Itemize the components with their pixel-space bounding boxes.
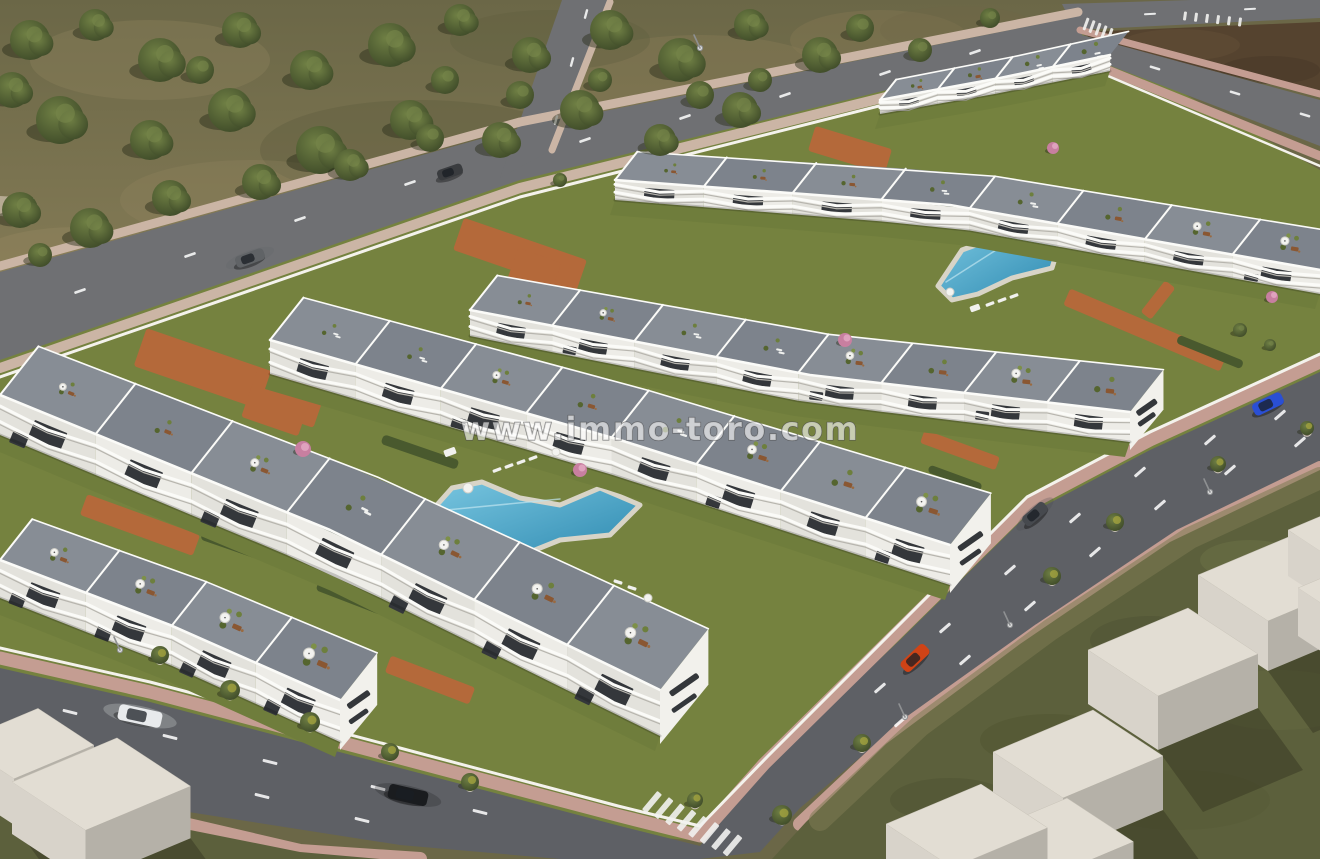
umbrella-pole (254, 462, 256, 464)
roof-shrub (1082, 49, 1087, 54)
tree-highlight (1269, 341, 1274, 346)
roof-shrub (1030, 192, 1034, 196)
roof-shrub (762, 169, 765, 172)
tree-highlight (167, 186, 181, 200)
tree-highlight (17, 198, 31, 212)
roof-shrub (591, 394, 596, 399)
sidewalk-tree (1113, 516, 1121, 524)
roof-shrub (610, 309, 614, 313)
umbrella-pole (62, 386, 64, 388)
tree-highlight (576, 96, 592, 112)
roof-chair (852, 486, 855, 489)
tree-highlight (497, 128, 511, 142)
roof-shrub (528, 294, 531, 297)
roof-shrub (978, 67, 981, 70)
roof-shrub (664, 169, 668, 173)
roof-shrub (419, 347, 423, 351)
roof-chair (922, 88, 923, 89)
garden-parasol (644, 594, 652, 602)
sidewalk-tree (388, 746, 396, 754)
sidewalk-tree (693, 794, 700, 801)
roof-chair (459, 556, 462, 559)
tree-highlight (237, 18, 251, 32)
roof-shrub (548, 583, 554, 589)
roof-shrub (505, 371, 509, 375)
tree-highlight (9, 78, 23, 92)
tree-highlight (156, 45, 174, 63)
roof-shrub (1206, 221, 1211, 226)
roof-shrub (776, 338, 780, 342)
tree-highlight (598, 72, 608, 82)
roof-shrub (264, 458, 269, 463)
roof-shrub (333, 324, 337, 328)
roof-shrub (1094, 42, 1098, 46)
roof-chair (1121, 220, 1123, 222)
roof-chair (1210, 235, 1212, 237)
tree-highlight (657, 129, 670, 142)
umbrella-pole (1015, 373, 1017, 375)
sidewalk-tree (860, 737, 868, 745)
roof-table (855, 361, 862, 366)
roof-shrub (968, 73, 972, 77)
roof-chair (74, 395, 76, 397)
roof-shrub (841, 181, 845, 185)
roof-shrub (847, 470, 852, 475)
pink-flowering-tree (844, 335, 851, 342)
tree-highlight (56, 104, 75, 123)
tree-highlight (747, 14, 760, 27)
roof-shrub (322, 331, 326, 335)
tree-highlight (857, 18, 868, 29)
tree-highlight (386, 30, 404, 48)
roof-shrub (578, 402, 583, 407)
roof-shrub (753, 175, 757, 179)
umbrella-pole (751, 449, 753, 451)
roof-shrub (1036, 55, 1040, 59)
roof-chair (508, 384, 510, 386)
tree-highlight (26, 26, 42, 42)
roof-chair (862, 365, 864, 367)
roof-chair (268, 472, 270, 474)
roof-shrub (518, 300, 522, 304)
tree-highlight (918, 42, 928, 52)
tree-highlight (146, 126, 162, 142)
roof-chair (67, 561, 69, 563)
roof-chair (980, 78, 982, 80)
roof-table (849, 183, 855, 186)
tree-highlight (316, 134, 335, 153)
roof-shrub (941, 180, 945, 184)
garden-parasol (946, 288, 954, 296)
pink-flowering-tree (301, 443, 309, 451)
sidewalk-tree (228, 684, 237, 693)
roof-shrub (642, 626, 648, 632)
sidewalk-tree (468, 776, 476, 784)
roof-chair (765, 179, 767, 181)
umbrella-pole (224, 617, 226, 619)
tree-highlight (257, 170, 271, 184)
tree-highlight (197, 60, 208, 71)
roof-table (1022, 379, 1030, 384)
tree-highlight (92, 14, 105, 27)
tree-highlight (406, 106, 422, 122)
roof-shrub (932, 496, 938, 502)
roof-table (760, 177, 766, 180)
sidewalk-tree (308, 716, 317, 725)
roof-chair (855, 186, 857, 188)
garden-parasol (463, 483, 473, 493)
umbrella-pole (849, 355, 851, 357)
umbrella-pole (496, 374, 498, 376)
umbrella-pole (536, 588, 538, 590)
tree-highlight (988, 11, 996, 19)
watermark-text: www.immo-toro.com (461, 410, 860, 448)
roof-chair (676, 173, 678, 175)
garden-parasol (552, 448, 560, 456)
sidewalk-tree (158, 649, 166, 657)
roof-chair (154, 594, 156, 596)
tree-highlight (457, 9, 470, 22)
umbrella-pole (308, 653, 310, 655)
tree-highlight (817, 43, 831, 57)
pink-flowering-tree (1271, 292, 1277, 298)
roof-shrub (155, 428, 160, 433)
roof-shrub (1026, 368, 1031, 373)
tree-highlight (427, 128, 438, 139)
umbrella-pole (1284, 240, 1286, 242)
tree-highlight (527, 43, 541, 57)
roof-shrub (763, 346, 768, 351)
roof-table (1106, 388, 1115, 393)
roof-shrub (1094, 386, 1100, 392)
roof-shrub (407, 354, 412, 359)
tree-highlight (697, 85, 708, 96)
roof-shrub (150, 578, 155, 583)
sidewalk-tree (1216, 458, 1223, 465)
roof-chair (766, 460, 768, 462)
roof-shrub (919, 79, 922, 82)
roof-chair (647, 645, 650, 648)
tree-highlight (226, 95, 244, 113)
roof-chair (1298, 250, 1300, 252)
roof-shrub (454, 539, 459, 544)
tree-highlight (606, 16, 622, 32)
roof-shrub (693, 324, 697, 328)
roof-chair (327, 666, 330, 669)
tree-highlight (306, 56, 322, 72)
roof-chair (1030, 383, 1032, 385)
roof-shrub (1018, 200, 1023, 205)
tree-highlight (86, 214, 102, 230)
roof-shrub (911, 84, 914, 87)
scene-svg: www.immo-toro.com (0, 0, 1320, 859)
roof-shrub (1118, 207, 1122, 211)
roof-shrub (859, 351, 863, 355)
umbrella-pole (139, 583, 141, 585)
pink-flowering-tree (1052, 143, 1058, 149)
tree-highlight (38, 247, 48, 257)
roof-chair (553, 600, 556, 603)
roof-shrub (346, 505, 352, 511)
roof-shrub (1105, 215, 1110, 220)
tree-highlight (559, 175, 565, 181)
pink-flowering-tree (579, 465, 586, 472)
roof-shrub (321, 647, 327, 653)
sidewalk-tree (1050, 570, 1058, 578)
tree-highlight (676, 45, 694, 63)
umbrella-pole (1196, 225, 1198, 227)
roof-shrub (852, 175, 856, 179)
roof-shrub (71, 383, 75, 387)
umbrella-pole (443, 544, 445, 546)
roof-shrub (942, 360, 947, 365)
roof-shrub (928, 368, 934, 374)
tree-highlight (442, 70, 453, 81)
roof-chair (613, 320, 615, 322)
roof-shrub (682, 331, 687, 336)
umbrella-pole (921, 501, 923, 503)
roof-shrub (167, 420, 171, 424)
tree-highlight (1239, 325, 1245, 331)
roof-shrub (1025, 62, 1030, 67)
roof-chair (946, 374, 948, 376)
sidewalk-tree (1306, 423, 1312, 429)
tree-highlight (517, 85, 528, 96)
render-stage: www.immo-toro.com (0, 0, 1320, 859)
tree-highlight (737, 98, 751, 112)
sidewalk-tree (780, 809, 789, 818)
tree-highlight (347, 154, 360, 167)
roof-table (939, 370, 947, 375)
roof-chair (241, 629, 244, 632)
roof-chair (937, 513, 940, 516)
roof-shrub (360, 496, 365, 501)
roof-shrub (832, 479, 838, 485)
roof-table (671, 170, 676, 173)
roof-shrub (63, 548, 67, 552)
roof-shrub (236, 611, 242, 617)
umbrella-pole (602, 312, 604, 314)
umbrella-pole (54, 551, 56, 553)
roof-shrub (1109, 377, 1114, 382)
tree-highlight (758, 72, 768, 82)
roof-shrub (673, 163, 676, 166)
roof-chair (1114, 393, 1117, 396)
roof-shrub (930, 187, 935, 192)
roof-chair (171, 433, 173, 435)
umbrella-pole (630, 632, 632, 634)
roof-chair (530, 305, 532, 307)
roof-shrub (1294, 236, 1299, 241)
